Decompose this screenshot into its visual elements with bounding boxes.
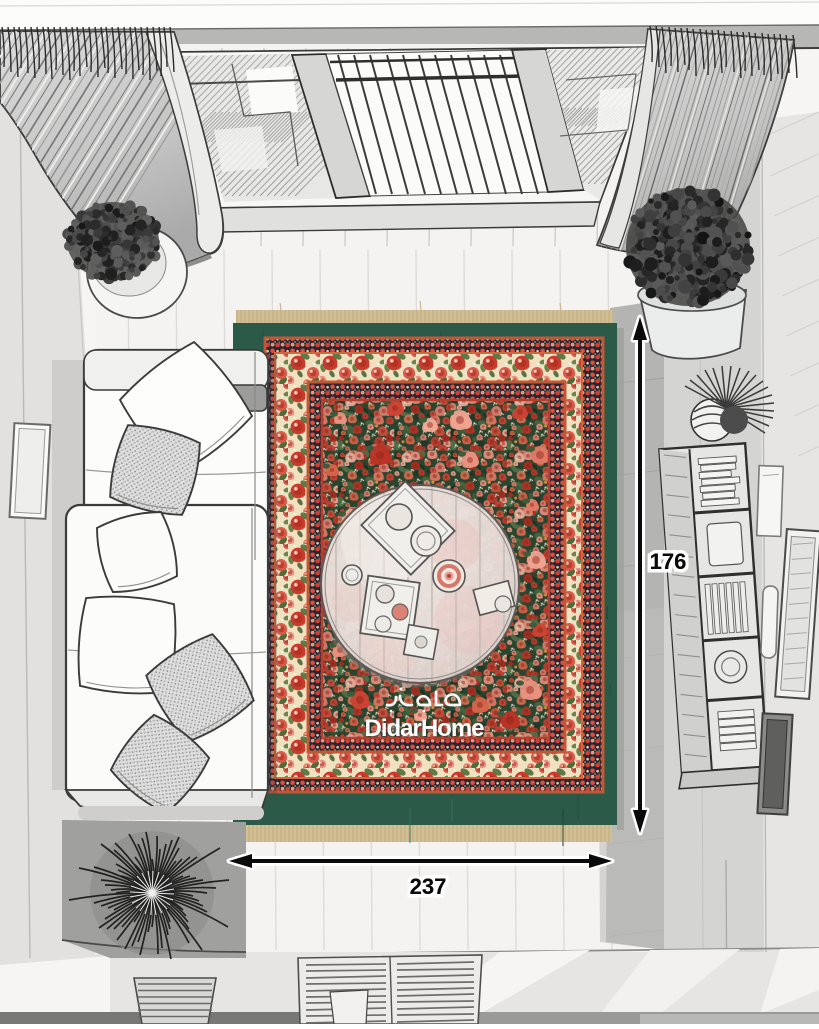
svg-text:DidarHome: DidarHome: [364, 715, 484, 742]
svg-text:176: 176: [650, 549, 687, 574]
svg-text:237: 237: [410, 874, 447, 899]
